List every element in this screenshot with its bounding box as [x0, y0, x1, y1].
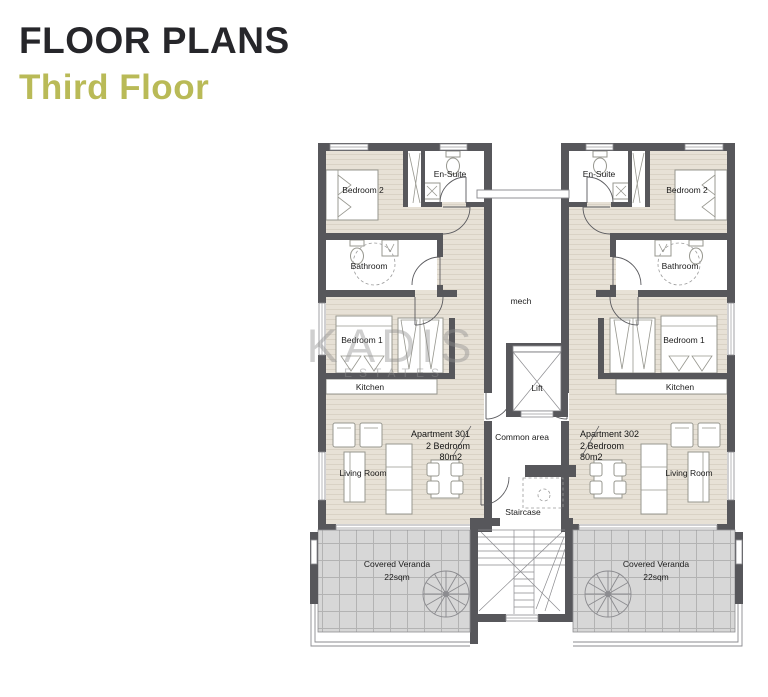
- page-title: FLOOR PLANS: [19, 22, 290, 61]
- veranda-302-area: 22sqm: [643, 572, 669, 582]
- room-label-bedroom1: Bedroom 1: [663, 335, 705, 345]
- veranda-301-area: 22sqm: [384, 572, 410, 582]
- apartment-301-spec: 2 Bedroom: [426, 441, 470, 451]
- apartment-302-name: Apartment 302: [580, 429, 639, 439]
- stair-treads: [478, 530, 565, 614]
- room-label-bedroom2: Bedroom 2: [666, 185, 708, 195]
- veranda-302-label: Covered Veranda: [623, 559, 689, 569]
- room-label-bathroom: Bathroom: [351, 261, 388, 271]
- staircase-room: [470, 518, 573, 644]
- label-mech: mech: [511, 296, 532, 306]
- watermark-title: KADIS: [306, 319, 477, 372]
- room-label-kitchen: Kitchen: [666, 382, 695, 392]
- veranda-301-label: Covered Veranda: [364, 559, 430, 569]
- spiral-stair-icon: [585, 571, 631, 617]
- watermark: KADIS ESTATES: [306, 319, 477, 380]
- lift-shaft: [506, 343, 568, 417]
- label-staircase: Staircase: [505, 507, 541, 517]
- room-label-bathroom: Bathroom: [662, 261, 699, 271]
- apartment-301-name: Apartment 301: [411, 429, 470, 439]
- label-common-area: Common area: [495, 432, 549, 442]
- page-subtitle: Third Floor: [19, 70, 290, 107]
- room-label-living: Living Room: [665, 468, 712, 478]
- room-label-kitchen: Kitchen: [356, 382, 385, 392]
- bridge-link: [477, 190, 569, 198]
- veranda-302: [573, 530, 743, 646]
- apartment-302-spec: 2 Bedroom: [580, 441, 624, 451]
- stair-landing-dashed: [523, 478, 563, 508]
- room-label-bedroom2: Bedroom 2: [342, 185, 384, 195]
- apartment-301-area: 80m2: [439, 452, 462, 462]
- page-header: FLOOR PLANS Third Floor: [19, 22, 290, 107]
- room-label-living: Living Room: [339, 468, 386, 478]
- room-label-ensuite: En-Suite: [434, 169, 467, 179]
- spiral-stair-icon: [423, 571, 469, 617]
- room-label-ensuite: En-Suite: [583, 169, 616, 179]
- label-lift: Lift: [531, 383, 543, 393]
- watermark-subtitle: ESTATES: [344, 366, 446, 380]
- veranda-301: [310, 530, 470, 646]
